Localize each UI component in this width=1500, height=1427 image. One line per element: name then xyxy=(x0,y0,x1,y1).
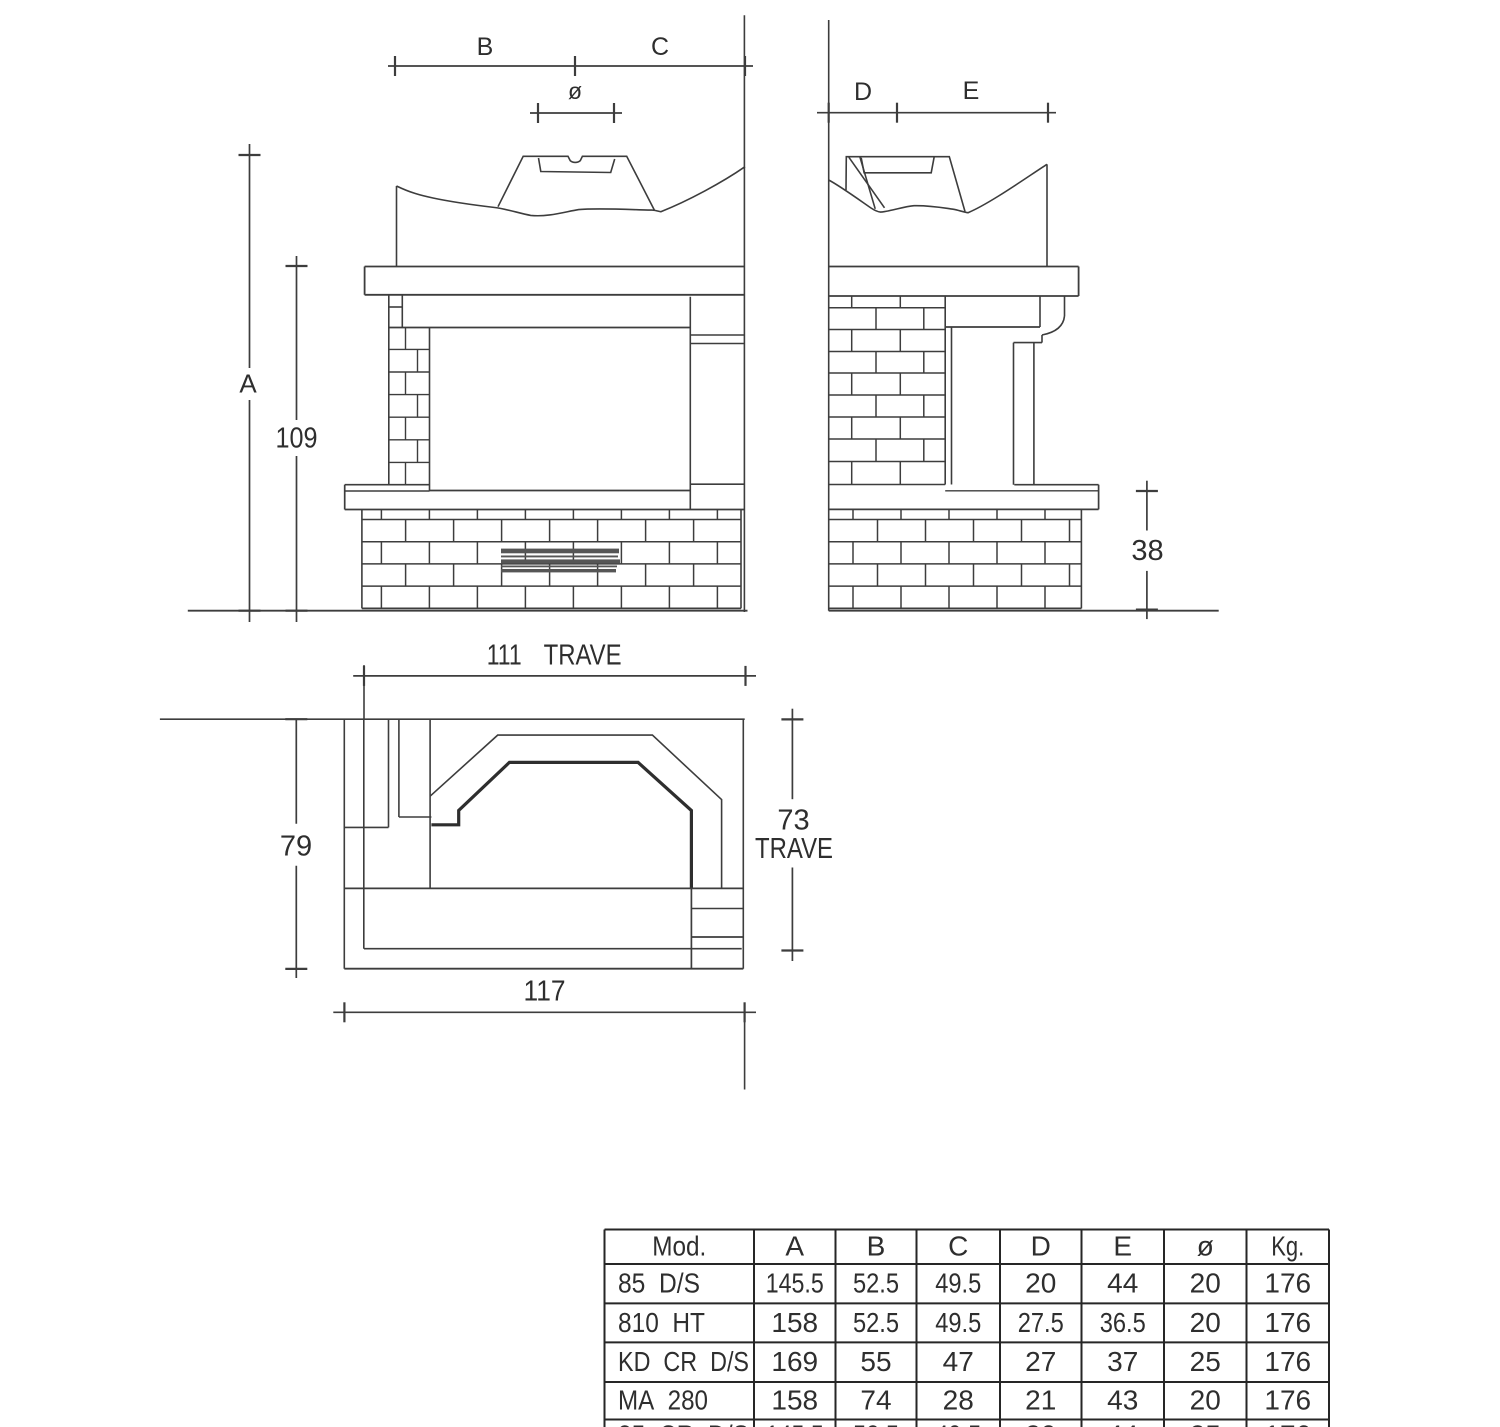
svg-text:25: 25 xyxy=(1190,1420,1221,1427)
svg-text:176: 176 xyxy=(1264,1268,1311,1299)
svg-text:38: 38 xyxy=(1131,535,1163,567)
svg-text:43: 43 xyxy=(1107,1385,1138,1416)
svg-text:176: 176 xyxy=(1264,1307,1311,1338)
svg-text:73: 73 xyxy=(777,805,809,837)
svg-text:52.5: 52.5 xyxy=(853,1268,899,1299)
svg-text:810 HT: 810 HT xyxy=(618,1307,705,1338)
svg-text:TRAVE: TRAVE xyxy=(544,640,622,672)
svg-text:21: 21 xyxy=(1025,1385,1056,1416)
svg-text:176: 176 xyxy=(1264,1420,1311,1427)
svg-text:C: C xyxy=(948,1231,968,1262)
svg-text:109: 109 xyxy=(276,423,318,455)
svg-text:20: 20 xyxy=(1025,1268,1056,1299)
svg-text:B: B xyxy=(867,1231,886,1262)
svg-text:176: 176 xyxy=(1264,1346,1311,1377)
svg-text:Kg.: Kg. xyxy=(1271,1231,1304,1262)
svg-text:145.5: 145.5 xyxy=(766,1268,824,1299)
svg-text:E: E xyxy=(1113,1231,1132,1262)
svg-text:E: E xyxy=(963,77,980,105)
svg-text:74: 74 xyxy=(860,1385,891,1416)
svg-text:79: 79 xyxy=(280,831,312,863)
svg-text:85 D/S: 85 D/S xyxy=(618,1268,700,1299)
svg-text:ø: ø xyxy=(1197,1231,1214,1262)
svg-text:49.5: 49.5 xyxy=(935,1307,981,1338)
svg-text:49.5: 49.5 xyxy=(935,1420,981,1427)
svg-text:27: 27 xyxy=(1025,1346,1056,1377)
svg-text:20: 20 xyxy=(1190,1385,1221,1416)
svg-text:25: 25 xyxy=(1190,1346,1221,1377)
svg-text:145.5: 145.5 xyxy=(766,1420,824,1427)
svg-text:27.5: 27.5 xyxy=(1018,1307,1064,1338)
svg-text:20: 20 xyxy=(1190,1307,1221,1338)
svg-text:176: 176 xyxy=(1264,1385,1311,1416)
svg-text:44: 44 xyxy=(1107,1268,1138,1299)
svg-text:B: B xyxy=(477,33,494,61)
svg-text:158: 158 xyxy=(771,1307,818,1338)
svg-text:A: A xyxy=(239,369,257,399)
svg-text:117: 117 xyxy=(524,976,566,1008)
svg-text:20: 20 xyxy=(1190,1268,1221,1299)
svg-text:TRAVE: TRAVE xyxy=(755,833,833,865)
svg-text:28: 28 xyxy=(943,1385,974,1416)
svg-text:52.5: 52.5 xyxy=(853,1420,899,1427)
svg-text:D: D xyxy=(854,78,872,106)
svg-text:36.5: 36.5 xyxy=(1100,1307,1146,1338)
svg-text:111: 111 xyxy=(487,640,522,672)
svg-text:20: 20 xyxy=(1025,1420,1056,1427)
svg-text:169: 169 xyxy=(771,1346,818,1377)
svg-text:158: 158 xyxy=(771,1385,818,1416)
svg-text:37: 37 xyxy=(1107,1346,1138,1377)
svg-text:Mod.: Mod. xyxy=(652,1231,706,1262)
svg-text:KD CR D/S: KD CR D/S xyxy=(618,1346,749,1377)
svg-text:C: C xyxy=(651,33,669,61)
svg-text:52.5: 52.5 xyxy=(853,1307,899,1338)
svg-text:55: 55 xyxy=(860,1346,891,1377)
svg-text:47: 47 xyxy=(943,1346,974,1377)
svg-text:44: 44 xyxy=(1107,1420,1138,1427)
svg-text:MA 280: MA 280 xyxy=(618,1385,708,1416)
svg-text:49.5: 49.5 xyxy=(935,1268,981,1299)
svg-text:ø: ø xyxy=(568,78,582,104)
svg-text:85 CR D/S: 85 CR D/S xyxy=(618,1420,749,1427)
svg-text:A: A xyxy=(785,1231,804,1262)
svg-text:D: D xyxy=(1031,1231,1051,1262)
